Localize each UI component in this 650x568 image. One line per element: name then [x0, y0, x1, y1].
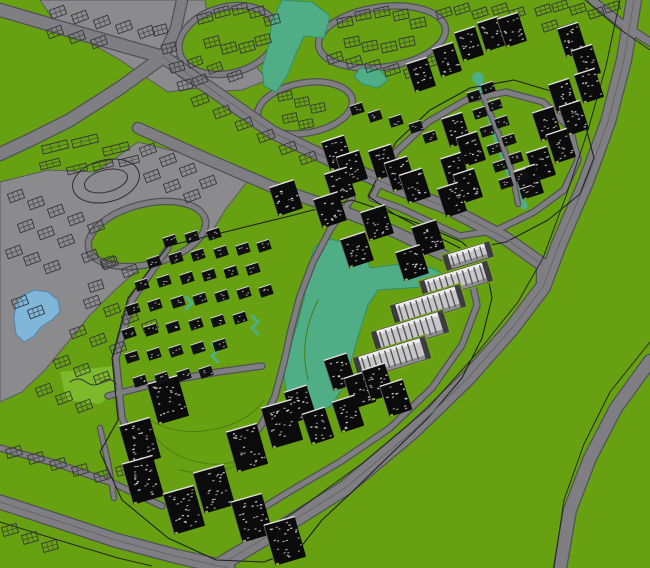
site-plan-3d-viewport[interactable]: [0, 0, 650, 568]
master-plan-render: [0, 0, 650, 568]
northeast-stream-head-pond: [472, 72, 484, 84]
